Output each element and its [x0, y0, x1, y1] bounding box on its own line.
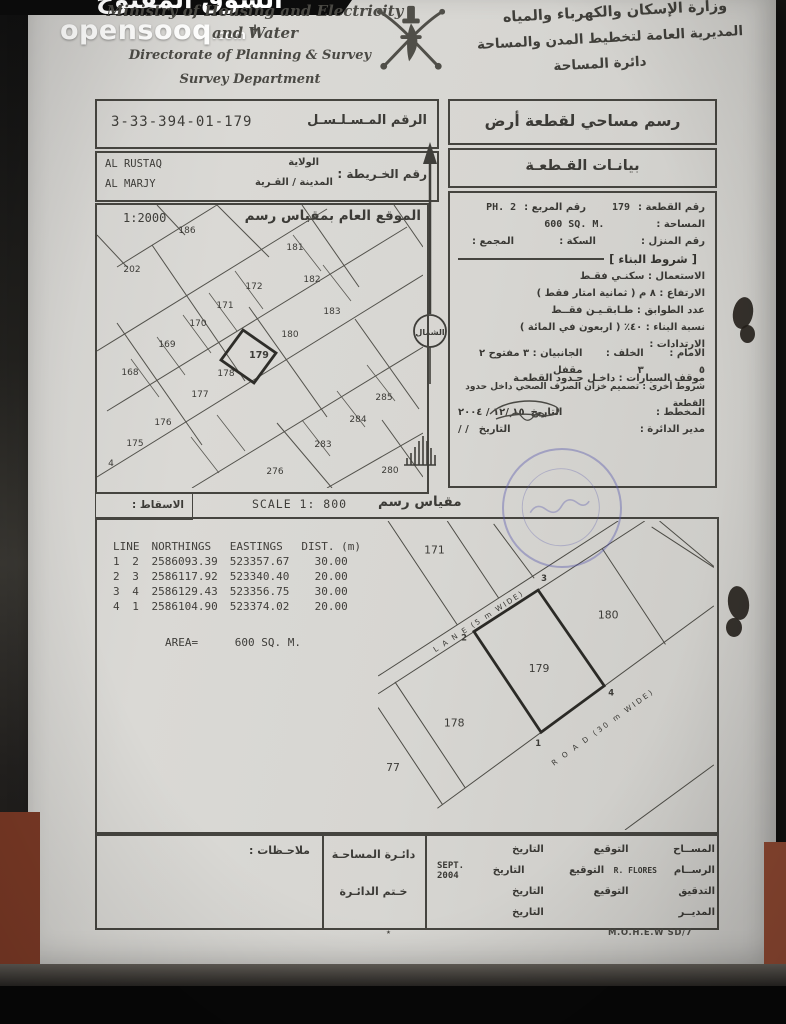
siteplan-plot-176: 176: [154, 418, 171, 428]
siteplan-plot-285: 285: [375, 393, 392, 403]
wilaya-label: الولاية: [288, 157, 319, 168]
planner-signature: [486, 398, 572, 424]
plot-number-row: رقم القطعة : 179 رقم المربع : PH. 2: [458, 199, 705, 216]
siteplan-plot-182: 182: [303, 275, 320, 285]
siteplan-plot-177: 177: [191, 390, 208, 400]
corner-point-4: 4: [608, 688, 614, 698]
siteplan-plot-186: 186: [178, 226, 195, 236]
sig-row-director: المديــر التاريخ: [427, 902, 715, 923]
coord-header-row: LINE NORTHINGS EASTINGS DIST. (m): [107, 539, 367, 554]
doc-reference: M.O.H.E.W SD/7: [608, 928, 692, 938]
corner-point-3: 3: [541, 573, 547, 583]
sig-row-draughtsman: الرســام R. FLORES التوقيع التاريخ SEPT.…: [427, 860, 715, 881]
siteplan-plot-168: 168: [121, 368, 138, 378]
height-row: الارتفاع : ٨ م ( ثمانية امتار فقط ): [458, 285, 705, 302]
planner-row: المخطط : التاريخ ١٥ /١٢ / ٢٠٠٤: [458, 404, 705, 421]
coordinates-table: LINE NORTHINGS EASTINGS DIST. (m) 12 258…: [107, 539, 367, 649]
dept-stamp-cell: دائـرة المساحـة خـتم الدائـرة: [322, 836, 427, 928]
serial-number-value: 3-33-394-01-179: [111, 114, 252, 130]
siteplan-plot-202: 202: [123, 265, 140, 275]
coord-row: 12 2586093.39523357.67 30.00: [107, 554, 367, 569]
scale-en: SCALE 1: 800: [252, 497, 347, 511]
building-conditions-divider: [ شروط البناء ]: [458, 250, 705, 268]
notes-cell: ملاحـظات :: [97, 836, 324, 928]
serial-number-label: الرقم المـسـلـسـل: [307, 113, 427, 128]
town-label: المدينة / القـرية: [255, 177, 333, 188]
dept-line2: خـتم الدائـرة: [322, 885, 425, 898]
ink-smudge: [740, 325, 755, 343]
wilaya-value: AL RUSTAQ: [105, 158, 162, 170]
plot-drawing: L A N E (5 m WIDE) R O A D (30 m WIDE) 1…: [378, 521, 714, 830]
coord-row: 34 2586129.43523356.75 30.00: [107, 584, 367, 599]
notes-label: ملاحـظات :: [249, 844, 310, 857]
setbacks-values-row: الامام : ٥ الخلف : ٣ الجانبيان : ٣ مفتوح…: [458, 353, 705, 370]
site-plan-box: 1:2000 الموقع العام بمقياس رسم: [95, 203, 429, 494]
house-street-complex-row: رقم المنزل : السكة : المجمع :: [458, 233, 705, 250]
siteplan-plot-284: 284: [349, 415, 366, 425]
corner-point-1: 1: [535, 738, 541, 748]
survey-department-en: Survey Department: [150, 72, 350, 87]
hatch-symbol: [404, 432, 436, 466]
directorate-en: Directorate of Planning & Survey: [120, 48, 380, 63]
siteplan-plot-172: 172: [245, 282, 262, 292]
siteplan-plot-171: 171: [216, 301, 233, 311]
area-row: المساحة : 600 SQ. M.: [458, 216, 705, 233]
floors-row: عدد الطوابق : طـابقـيـن فقــط: [458, 302, 705, 319]
siteplan-plot-169: 169: [158, 340, 175, 350]
plot-details-box: رقم القطعة : 179 رقم المربع : PH. 2 المس…: [448, 191, 717, 488]
siteplan-plot-276: 276: [266, 467, 283, 477]
photo-brown-surface-left: [0, 812, 40, 982]
photo-of-survey-document: السوق المفتوح opensooq.com Ministry of H…: [0, 0, 786, 1024]
corner-point-2: 2: [461, 632, 467, 642]
scale-ar: مقياس رسم: [378, 494, 462, 510]
siteplan-plot-179: 179: [249, 350, 269, 361]
use-row: الاستعمال : سكنـي فقـط: [458, 268, 705, 285]
siteplan-plot-183: 183: [323, 307, 340, 317]
projection-label: الاسقاط :: [132, 499, 184, 511]
footer-mark: ٭: [386, 928, 391, 938]
building-conditions-title: [ شروط البناء ]: [609, 252, 697, 266]
projection-box: الاسقاط :: [95, 492, 193, 520]
sig-row-surveyor: المســاح التوقيع التاريخ: [427, 839, 715, 860]
sig-row-checker: التدقيق التوقيع التاريخ: [427, 881, 715, 902]
site-plan-map: 1862021811821721711831701691801791681781…: [97, 205, 423, 488]
plot-drawing-box: LINE NORTHINGS EASTINGS DIST. (m) 12 258…: [95, 517, 719, 834]
plot-data-title: بيانـات القـطعـة: [450, 150, 715, 183]
survey-drawing-title: رسم مساحي لقطعة أرض: [450, 101, 715, 141]
signature-table: ملاحـظات : دائـرة المساحـة خـتم الدائـرة…: [95, 834, 719, 930]
siteplan-plot-280: 280: [381, 466, 398, 476]
siteplan-plot-181: 181: [286, 243, 303, 253]
signatures-cell: المســاح التوقيع التاريخ الرســام R. FLO…: [427, 836, 715, 928]
serial-number-box: 3-33-394-01-179 الرقم المـسـلـسـل: [95, 99, 439, 149]
plot-data-title-box: بيانـات القـطعـة: [448, 148, 717, 188]
ratio-row: نسبة البناء : ٤٠٪ ( اربعون في المائة ): [458, 319, 705, 336]
drawing-plot-179: 179: [529, 662, 550, 675]
siteplan-plot-180: 180: [281, 330, 298, 340]
coord-row: 23 2586117.92523340.40 20.00: [107, 569, 367, 584]
siteplan-plot-170: 170: [189, 319, 206, 329]
siteplan-plot-178: 178: [217, 369, 234, 379]
drawing-plot-178: 178: [444, 716, 465, 729]
road-label: R O A D (30 m WIDE): [550, 687, 656, 768]
oman-emblem-icon: [372, 2, 450, 76]
ink-smudge: [726, 618, 742, 637]
area-summary: AREA= 600 SQ. M.: [107, 636, 367, 649]
coord-row: 41 2586104.90523374.02 20.00: [107, 599, 367, 614]
lane-label: L A N E (5 m WIDE): [432, 588, 526, 654]
photo-brown-surface-right: [764, 842, 786, 974]
siteplan-plot-175: 175: [126, 439, 143, 449]
town-value: AL MARJY: [105, 178, 156, 190]
drawing-plot-180: 180: [598, 609, 619, 622]
siteplan-plot-283: 283: [314, 440, 331, 450]
photo-black-bottom-bar: [0, 986, 786, 1024]
drawing-plot-77: 77: [386, 761, 400, 774]
dept-line1: دائـرة المساحـة: [322, 848, 425, 861]
drawing-plot-171: 171: [424, 544, 445, 557]
survey-drawing-title-box: رسم مساحي لقطعة أرض: [448, 99, 717, 145]
siteplan-plot-4: 4: [108, 459, 114, 469]
map-info-box: رقم الخـريطة : الولاية المدينة / القـرية…: [95, 151, 439, 202]
ministry-name-en-line2: and Water: [150, 24, 360, 42]
